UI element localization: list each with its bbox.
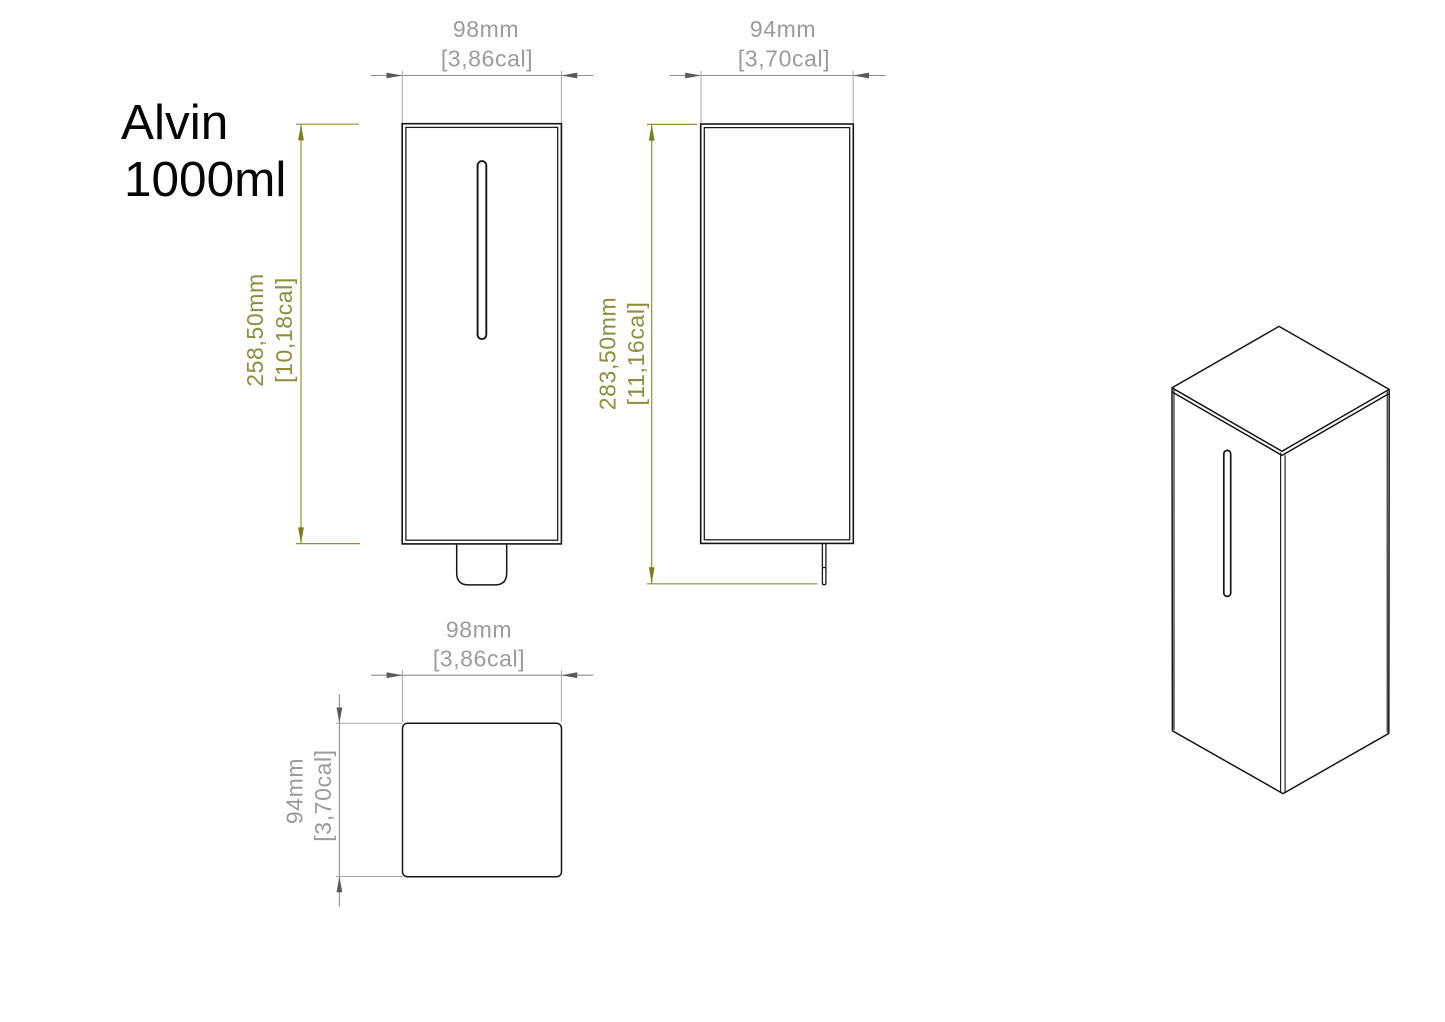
svg-text:1000ml: 1000ml: [124, 152, 286, 207]
svg-text:[3,86cal]: [3,86cal]: [433, 646, 525, 672]
svg-text:258,50mm: 258,50mm: [242, 273, 268, 386]
svg-text:[3,70cal]: [3,70cal]: [738, 46, 830, 72]
svg-text:Alvin: Alvin: [121, 95, 228, 150]
svg-text:98mm: 98mm: [453, 16, 519, 42]
svg-text:283,50mm: 283,50mm: [595, 297, 621, 410]
svg-text:[10,18cal]: [10,18cal]: [271, 277, 297, 383]
svg-text:[3,86cal]: [3,86cal]: [441, 46, 533, 72]
svg-text:98mm: 98mm: [446, 617, 512, 643]
svg-text:94mm: 94mm: [282, 758, 308, 824]
svg-text:[11,16cal]: [11,16cal]: [623, 301, 649, 405]
svg-text:[3,70cal]: [3,70cal]: [310, 749, 336, 841]
svg-text:94mm: 94mm: [750, 16, 816, 42]
